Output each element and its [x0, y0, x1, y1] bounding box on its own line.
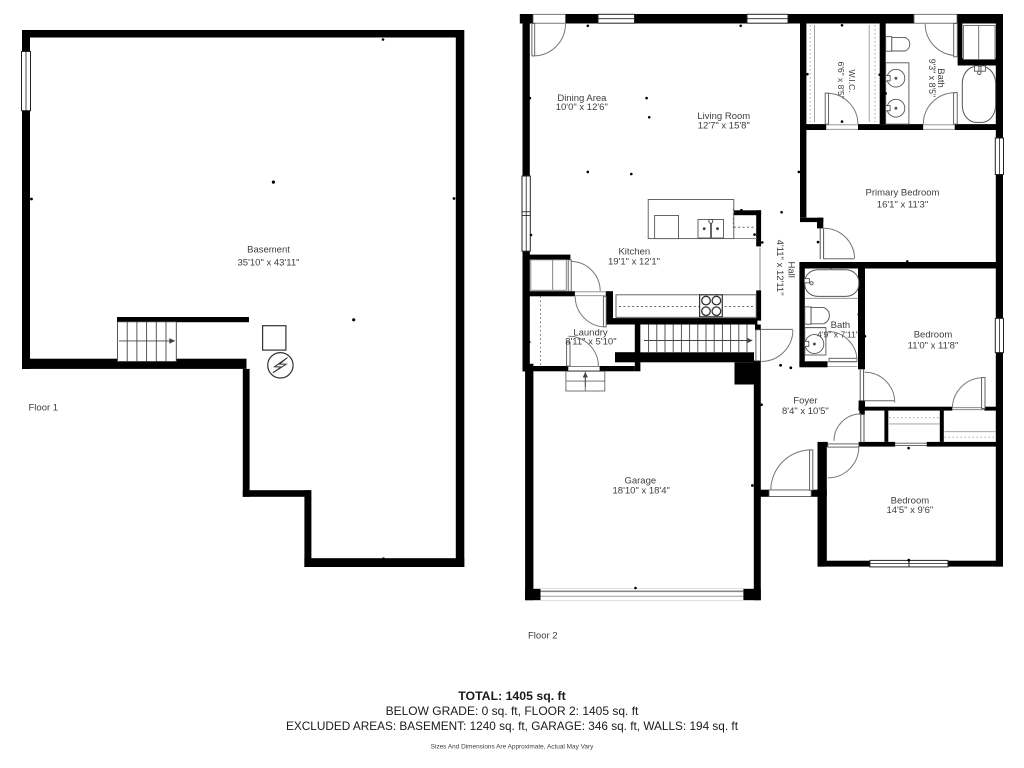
svg-text:Primary Bedroom: Primary Bedroom [866, 188, 940, 199]
svg-text:Hall: Hall [786, 262, 797, 278]
svg-text:11'0" x 11'8": 11'0" x 11'8" [908, 341, 959, 352]
svg-text:8'11" x 5'10": 8'11" x 5'10" [565, 337, 616, 348]
svg-text:TOTAL: 1405 sq. ft: TOTAL: 1405 sq. ft [458, 689, 566, 703]
svg-text:W.I.C.: W.I.C. [847, 70, 857, 93]
svg-text:14'5" x 9'6": 14'5" x 9'6" [886, 505, 933, 516]
svg-text:4'9" x 7'11": 4'9" x 7'11" [817, 330, 859, 340]
svg-text:10'0" x 12'6": 10'0" x 12'6" [556, 102, 608, 113]
svg-text:Floor 2: Floor 2 [528, 631, 558, 642]
svg-text:12'7" x 15'8": 12'7" x 15'8" [698, 120, 750, 131]
svg-text:18'10" x 18'4": 18'10" x 18'4" [613, 485, 670, 496]
svg-text:BELOW GRADE: 0 sq. ft, FLOOR 2: BELOW GRADE: 0 sq. ft, FLOOR 2: 1405 sq.… [386, 704, 639, 718]
svg-text:9'3" x 8'5": 9'3" x 8'5" [927, 59, 937, 97]
svg-text:19'1" x 12'1": 19'1" x 12'1" [608, 256, 660, 267]
svg-text:Basement: Basement [247, 245, 290, 256]
svg-text:35'10" x 43'11": 35'10" x 43'11" [238, 258, 300, 269]
svg-text:Floor 1: Floor 1 [29, 403, 59, 414]
svg-text:16'1" x 11'3": 16'1" x 11'3" [877, 200, 928, 211]
svg-text:Bedroom: Bedroom [914, 330, 953, 341]
svg-text:8'4" x 10'5": 8'4" x 10'5" [782, 406, 829, 417]
svg-text:Sizes And Dimensions Are Appro: Sizes And Dimensions Are Approximate, Ac… [431, 744, 594, 751]
svg-text:EXCLUDED AREAS: BASEMENT: 1240: EXCLUDED AREAS: BASEMENT: 1240 sq. ft, G… [286, 719, 739, 733]
svg-text:4'11" x 12'11": 4'11" x 12'11" [774, 240, 785, 296]
svg-text:6'6" x 8'5": 6'6" x 8'5" [836, 62, 846, 99]
